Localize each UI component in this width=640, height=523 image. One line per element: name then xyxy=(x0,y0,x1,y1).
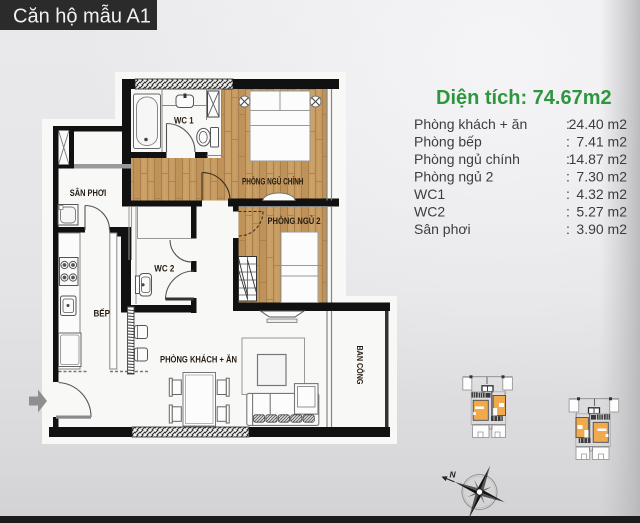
svg-text:WC1: WC1 xyxy=(414,186,445,202)
svg-text:Diện tích: 74.67m2: Diện tích: 74.67m2 xyxy=(436,87,612,109)
svg-text:7.30 m2: 7.30 m2 xyxy=(576,169,627,185)
svg-text:24.40 m2: 24.40 m2 xyxy=(569,116,628,132)
svg-text:PHÒNG NGỦ 2: PHÒNG NGỦ 2 xyxy=(268,215,321,226)
svg-text:14.87 m2: 14.87 m2 xyxy=(569,151,628,167)
svg-text:Phòng ngủ chính: Phòng ngủ chính xyxy=(414,151,520,167)
svg-text:4.32 m2: 4.32 m2 xyxy=(576,186,627,202)
svg-text:BẾP: BẾP xyxy=(93,309,110,319)
svg-text::: : xyxy=(566,221,570,237)
svg-text:PHÒNG NGỦ CHÍNH: PHÒNG NGỦ CHÍNH xyxy=(242,176,304,187)
svg-text:WC2: WC2 xyxy=(414,204,445,220)
svg-text::: : xyxy=(566,134,570,150)
svg-text:WC 1: WC 1 xyxy=(174,116,194,126)
svg-text:Phòng bếp: Phòng bếp xyxy=(414,134,482,150)
svg-text:Căn hộ mẫu A1: Căn hộ mẫu A1 xyxy=(13,5,151,28)
svg-text:7.41 m2: 7.41 m2 xyxy=(576,134,627,150)
svg-text:BAN CÔNG: BAN CÔNG xyxy=(355,346,366,385)
svg-text:PHÒNG KHÁCH + ĂN: PHÒNG KHÁCH + ĂN xyxy=(160,354,237,365)
svg-text:Sân phơi: Sân phơi xyxy=(414,221,471,237)
svg-text:Phòng khách + ăn: Phòng khách + ăn xyxy=(414,116,527,132)
svg-text:3.90 m2: 3.90 m2 xyxy=(576,221,627,237)
svg-text::: : xyxy=(566,204,570,220)
svg-text:SÂN PHƠI: SÂN PHƠI xyxy=(70,187,107,198)
svg-text:N: N xyxy=(450,470,457,480)
svg-text:5.27 m2: 5.27 m2 xyxy=(576,204,627,220)
svg-text::: : xyxy=(566,186,570,202)
svg-text::: : xyxy=(566,169,570,185)
svg-text:Phòng ngủ 2: Phòng ngủ 2 xyxy=(414,169,494,185)
svg-text:WC 2: WC 2 xyxy=(154,263,174,273)
